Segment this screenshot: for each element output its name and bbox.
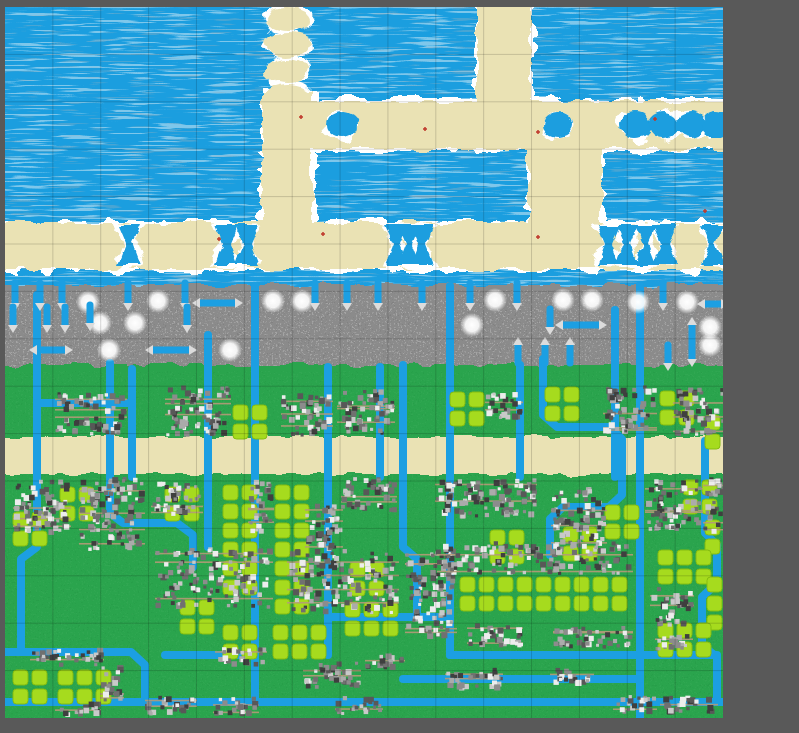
farm-field-cluster [707, 577, 741, 630]
snow-cap-icon [261, 289, 285, 313]
snow-cap-icon [460, 313, 484, 337]
snow-cap-icon [698, 333, 722, 357]
snow-cap-icon [123, 311, 147, 335]
map-layers [0, 0, 741, 731]
snow-cap-icon [290, 289, 314, 313]
snow-cap-icon [218, 338, 242, 362]
snow-cap-icon [146, 289, 170, 313]
map-root [0, 0, 741, 731]
snow-cap-icon [675, 290, 699, 314]
map-canvas[interactable] [0, 0, 799, 733]
flow-arrow-icon [721, 299, 729, 309]
snow-cap-icon [626, 290, 650, 314]
editor-background [0, 0, 799, 733]
